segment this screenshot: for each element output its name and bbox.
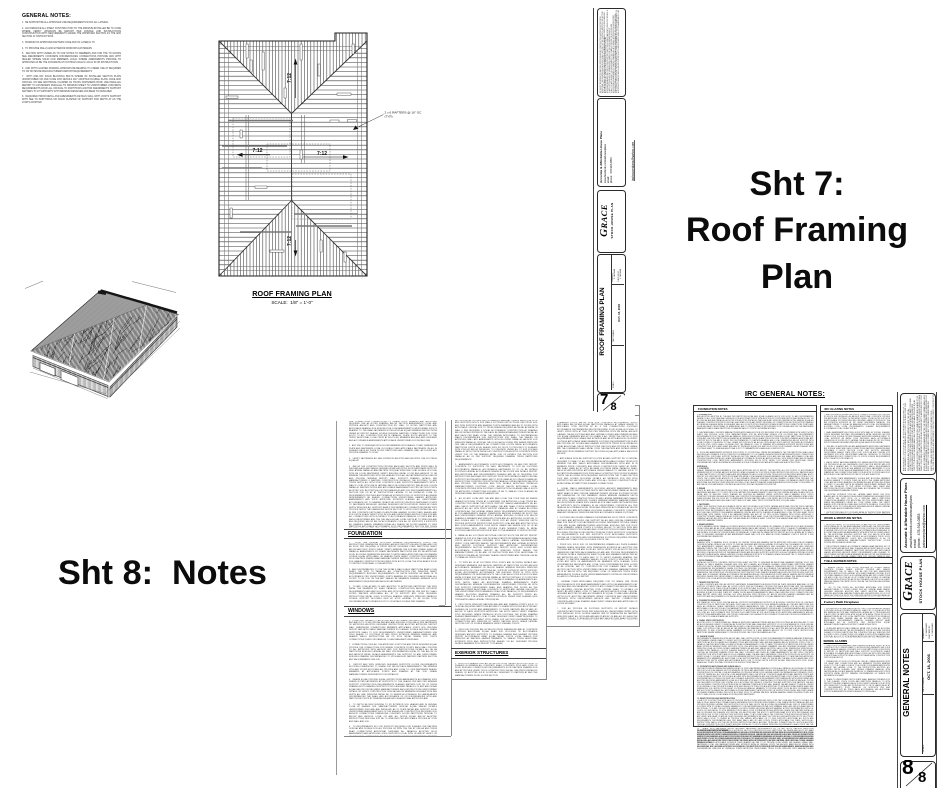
svg-text:7:12: 7:12 [317,151,327,157]
svg-text:(TYP): (TYP) [385,115,393,119]
svg-text:7:12: 7:12 [253,148,263,154]
svg-text:7:12: 7:12 [287,236,293,246]
svg-text:7:12: 7:12 [287,73,293,83]
